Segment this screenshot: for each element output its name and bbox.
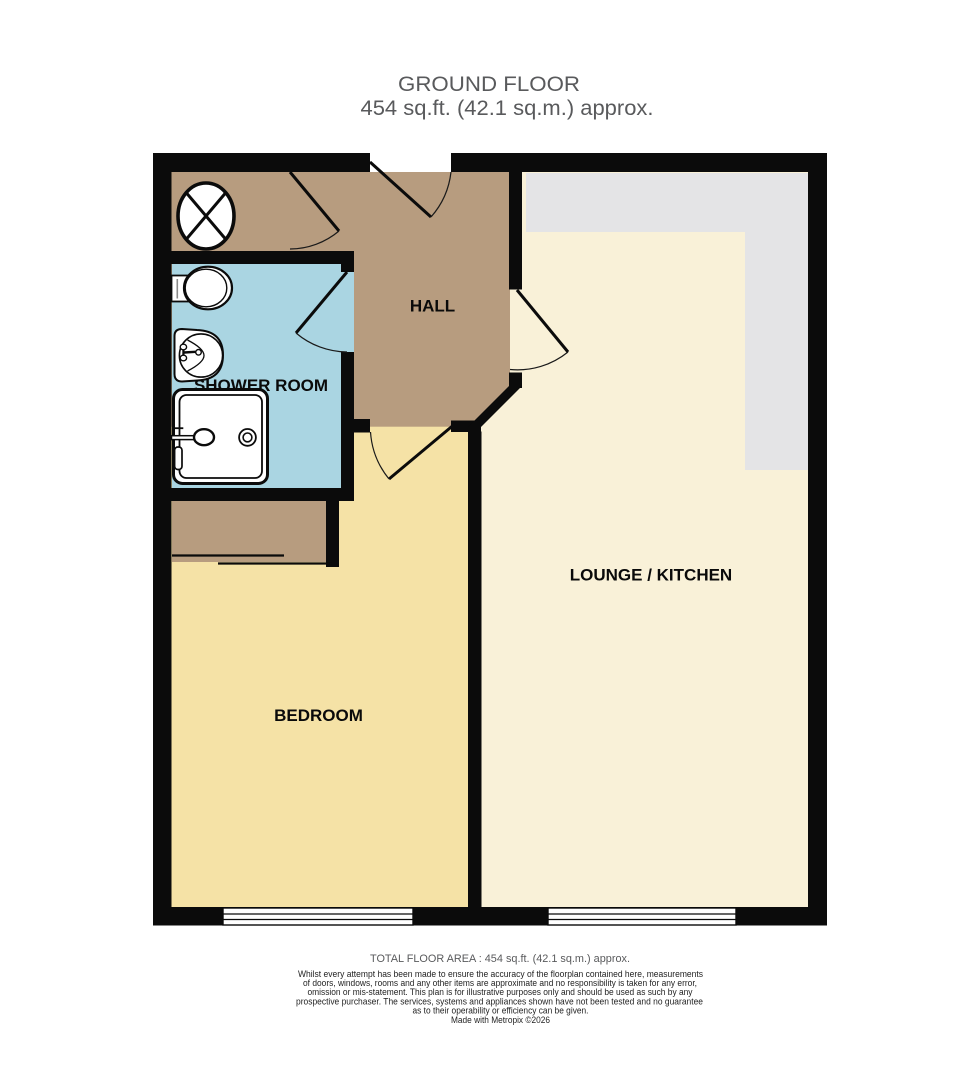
- svg-text:Made with Metropix ©2026: Made with Metropix ©2026: [451, 1015, 550, 1025]
- svg-text:BEDROOM: BEDROOM: [274, 706, 363, 725]
- svg-text:TOTAL FLOOR AREA : 454 sq.ft.: TOTAL FLOOR AREA : 454 sq.ft. (42.1 sq.m…: [370, 953, 630, 965]
- svg-text:GROUND FLOOR: GROUND FLOOR: [398, 73, 580, 96]
- svg-text:LOUNGE / KITCHEN: LOUNGE / KITCHEN: [570, 566, 732, 585]
- svg-text:454 sq.ft. (42.1 sq.m.) approx: 454 sq.ft. (42.1 sq.m.) approx.: [361, 97, 654, 120]
- svg-text:HALL: HALL: [410, 297, 455, 316]
- svg-text:SHOWER ROOM: SHOWER ROOM: [194, 376, 328, 395]
